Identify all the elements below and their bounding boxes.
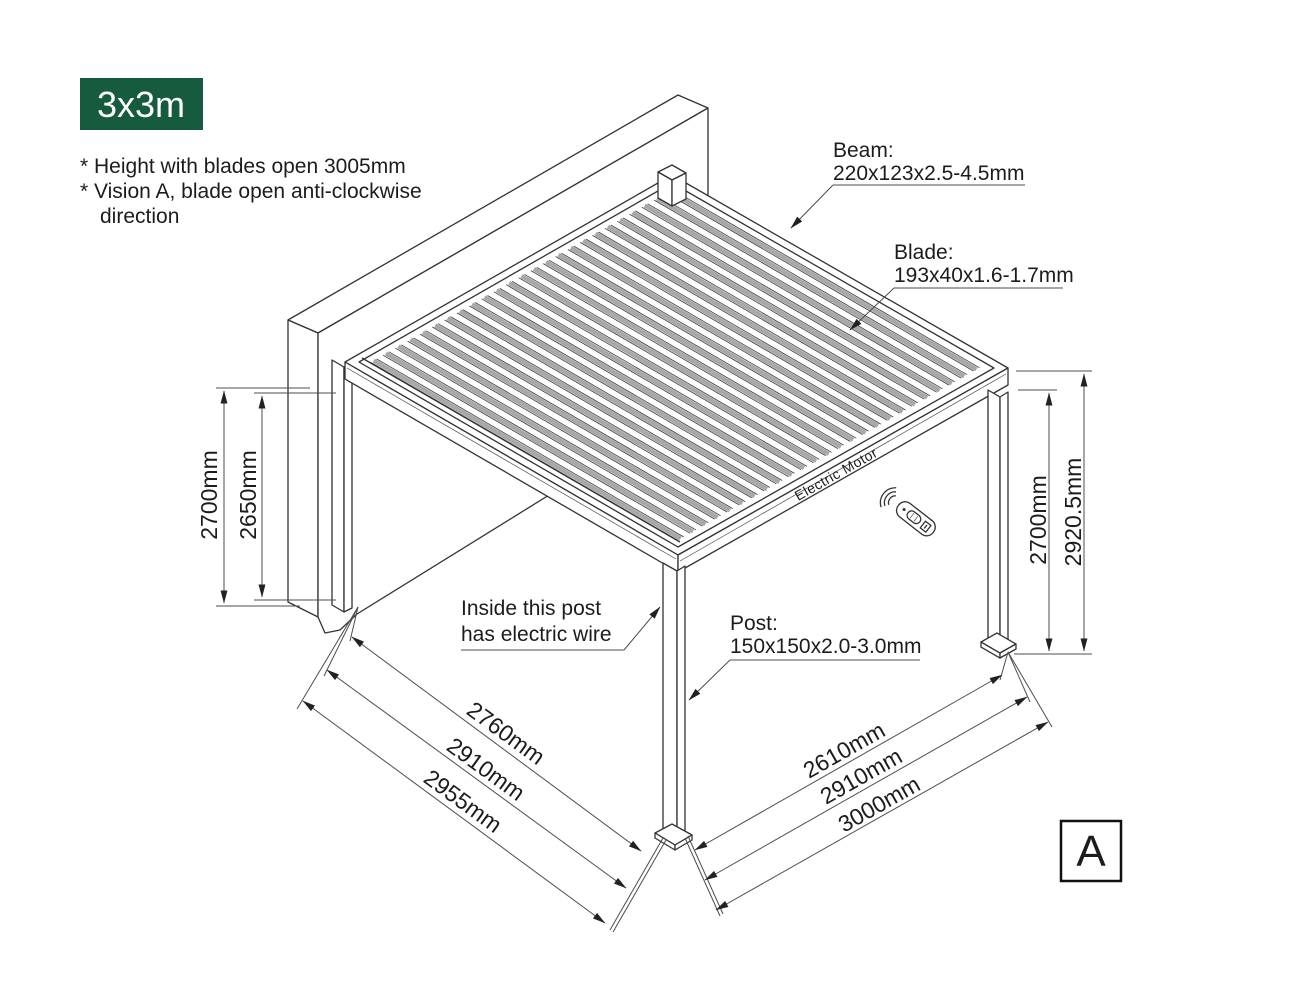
callout-beam-leader	[791, 185, 833, 228]
center-post	[655, 563, 692, 850]
dim-right-inner: 2700mm	[1025, 475, 1051, 564]
callout-blade-title: Blade:	[894, 241, 954, 264]
callout-post-leader	[689, 660, 730, 700]
callout-blade-spec: 193x40x1.6-1.7mm	[894, 264, 1074, 287]
remote-signal-waves	[876, 484, 900, 510]
note-line-1: * Height with blades open 3005mm	[80, 155, 406, 178]
left-post	[332, 360, 352, 612]
callout-post: Post: 150x150x2.0-3.0mm	[689, 612, 921, 700]
dimension-right-group: 2700mm 2920.5mm	[1014, 371, 1092, 654]
callout-post-title: Post:	[730, 612, 778, 635]
dim-line-2955	[303, 701, 605, 923]
dim-right-outer: 2920.5mm	[1060, 458, 1086, 567]
remote-control-icon	[876, 484, 941, 542]
note-line-2: * Vision A, blade open anti-clockwise	[80, 180, 422, 203]
callout-beam: Beam: 220x123x2.5-4.5mm	[791, 139, 1025, 228]
dimension-bottom-right-group: 2610mm 2910mm 3000mm	[685, 652, 1052, 916]
motor-housing	[658, 165, 686, 206]
right-post	[981, 390, 1016, 658]
callout-wire-line1: Inside this post	[461, 597, 601, 620]
dim-left-outer: 2700mm	[196, 450, 222, 539]
dim-left-inner: 2650mm	[235, 450, 261, 539]
note-line-3: direction	[100, 205, 179, 228]
view-label-letter: A	[1076, 827, 1106, 876]
callout-wire-leader	[624, 607, 660, 650]
callout-beam-spec: 220x123x2.5-4.5mm	[833, 162, 1024, 185]
view-label-box: A	[1061, 821, 1121, 881]
callout-electric-wire: Inside this post has electric wire	[461, 597, 660, 650]
wall-end-face	[288, 320, 318, 617]
callout-wire-line2: has electric wire	[461, 623, 612, 646]
dimension-bottom-left-group: 2760mm 2910mm 2955mm	[297, 607, 666, 932]
size-badge: 3x3m	[80, 78, 203, 130]
callout-post-spec: 150x150x2.0-3.0mm	[730, 635, 921, 658]
callout-beam-title: Beam:	[833, 139, 894, 162]
pergola-technical-drawing: Electric Motor 2700mm 2650mm	[0, 0, 1300, 1000]
notes: * Height with blades open 3005mm * Visio…	[80, 155, 422, 228]
size-badge-label: 3x3m	[97, 84, 185, 125]
